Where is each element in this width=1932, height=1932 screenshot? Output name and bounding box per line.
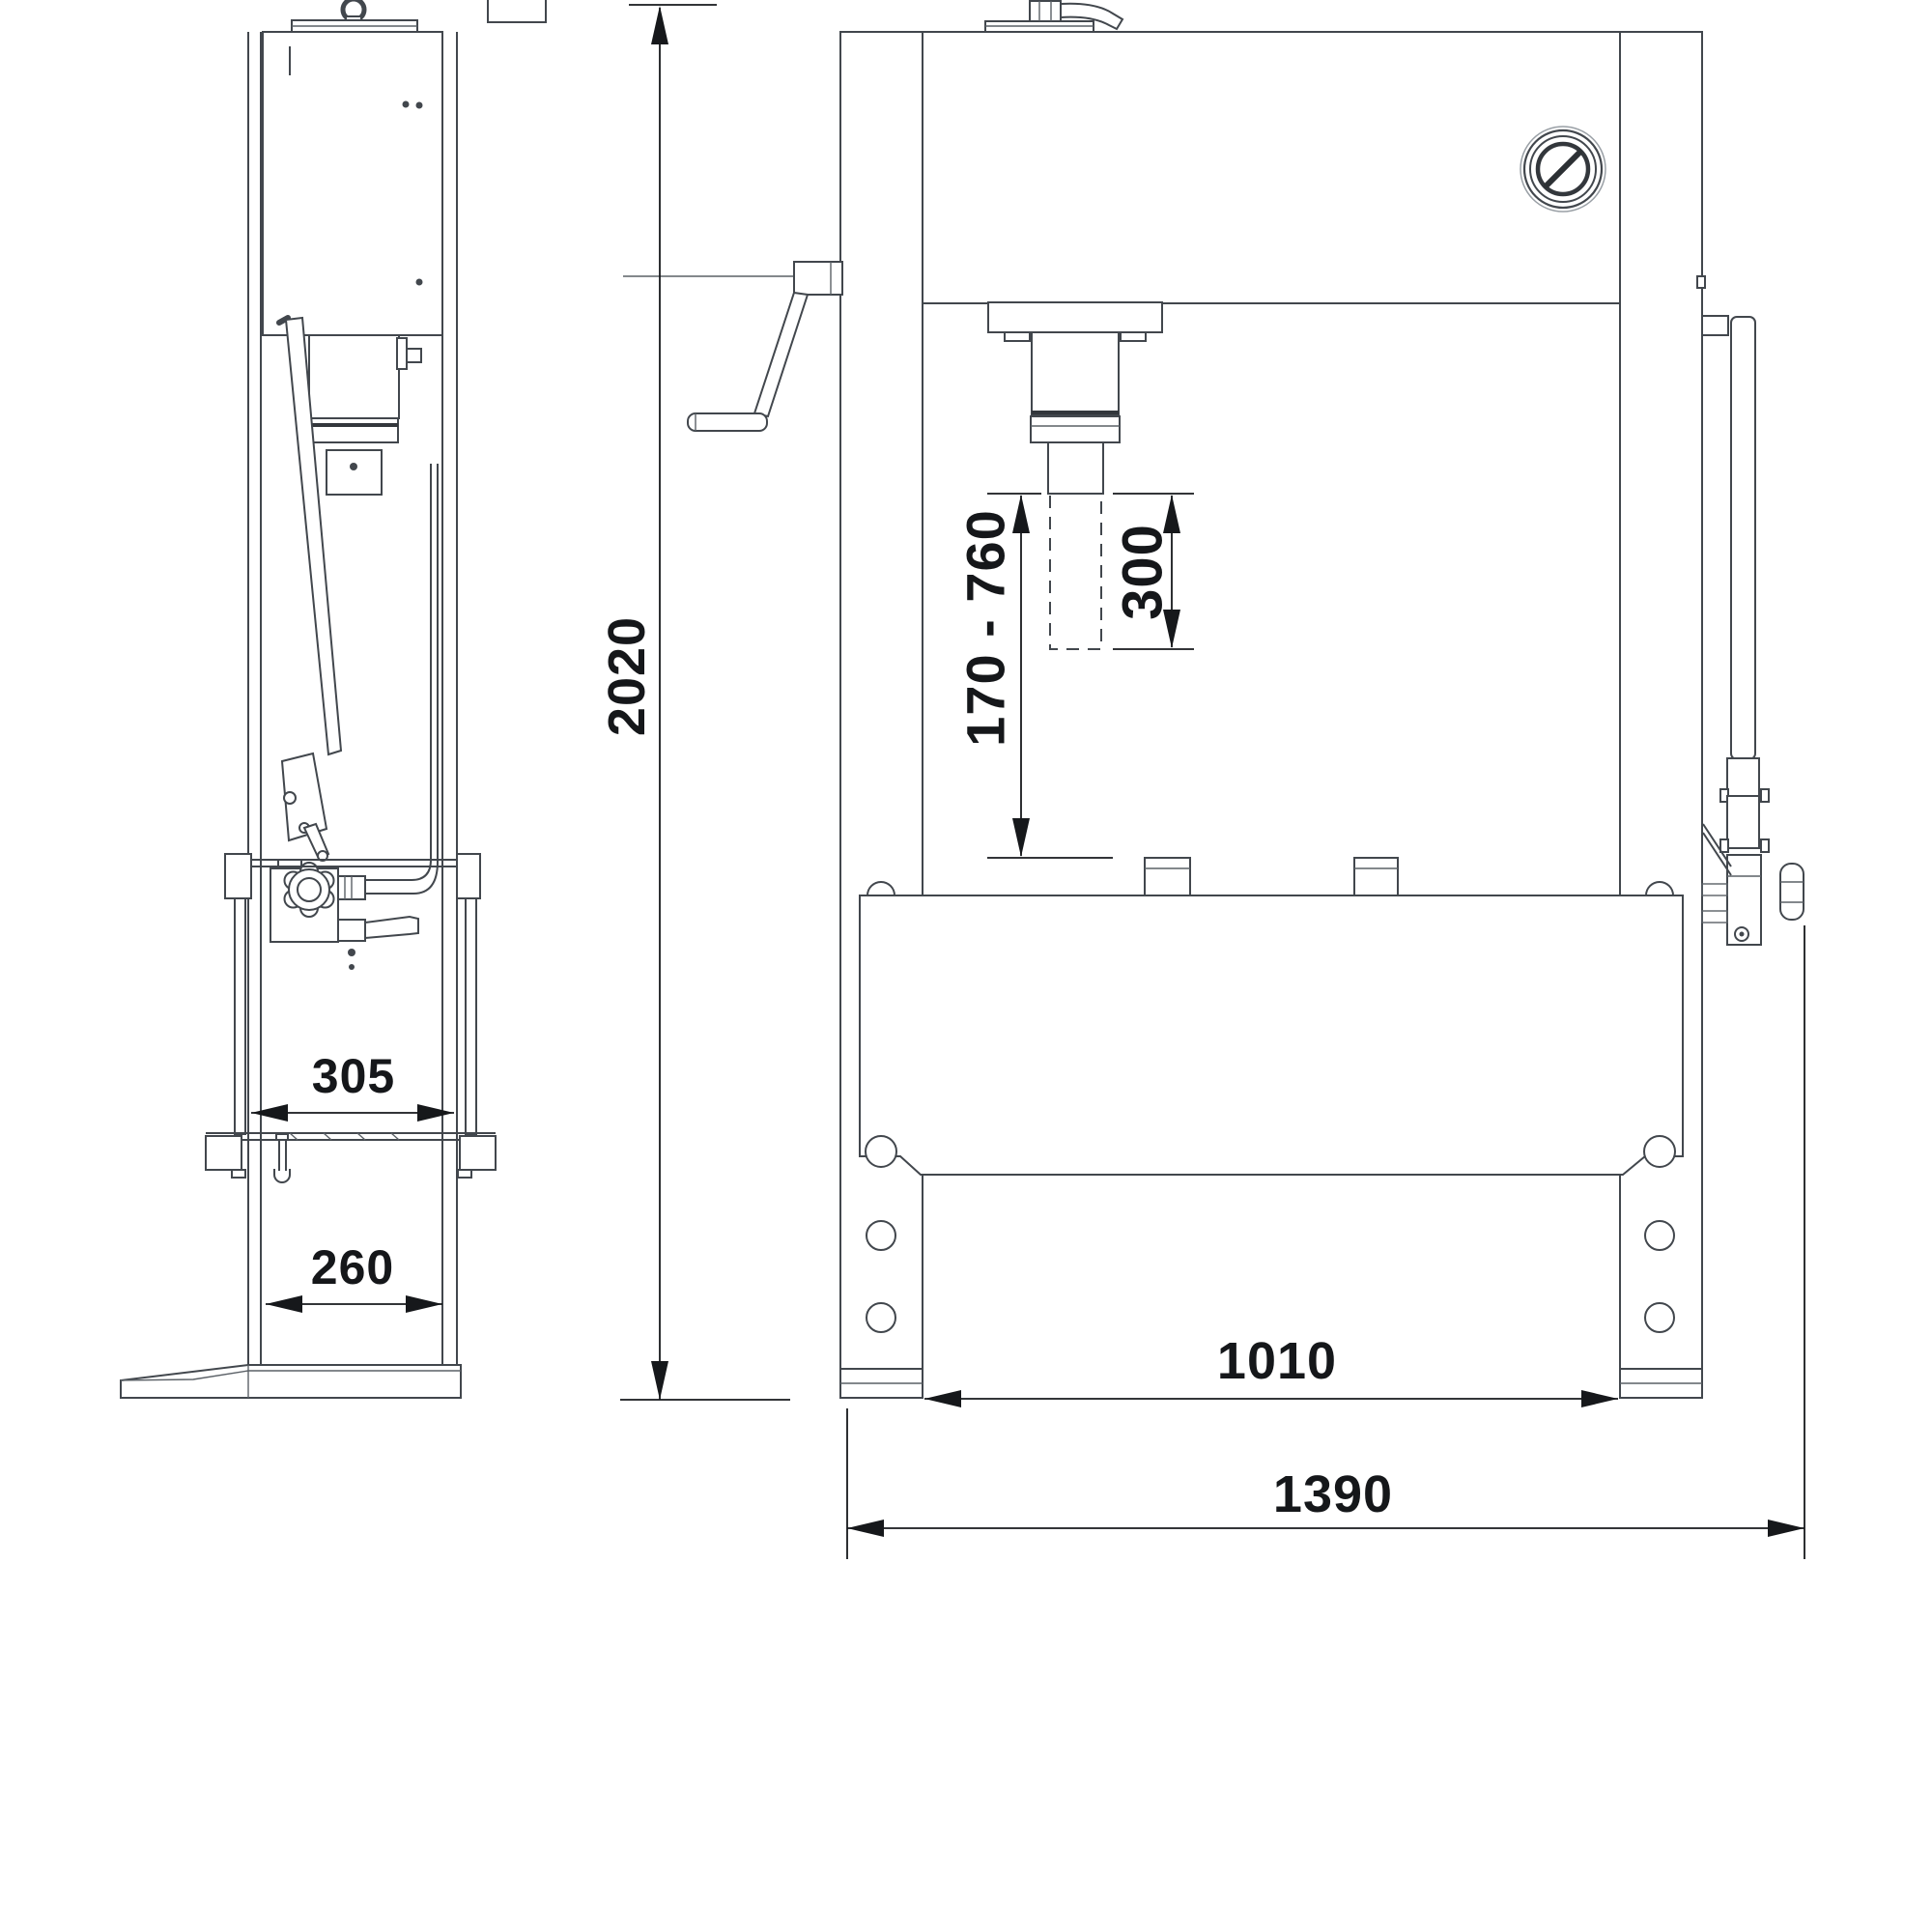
hand-pump-assembly — [1702, 316, 1804, 945]
dim-working-range: 170 - 760 — [955, 494, 1114, 858]
bed-support-pin — [274, 1134, 290, 1182]
front-column-right — [1620, 32, 1702, 1369]
clipped-detail-box — [488, 0, 546, 22]
dim-piston-stroke-label: 300 — [1112, 524, 1175, 620]
bed-support-block-right — [1354, 858, 1398, 896]
front-foot-right — [1620, 1369, 1702, 1398]
front-column-left — [840, 32, 923, 1369]
dim-overall-width-label: 1390 — [1273, 1465, 1393, 1523]
dim-inner-width: 1010 — [924, 1332, 1618, 1407]
top-beam — [923, 32, 1620, 303]
dim-overall-height: 2020 — [488, 0, 794, 1400]
oil-tank — [263, 32, 442, 335]
bed-support-block-left — [1145, 858, 1190, 896]
pump-release-knob — [1780, 864, 1804, 920]
hydraulic-press-drawing: 305 260 2020 — [0, 0, 1932, 1932]
dim-side-width-lower: 260 — [266, 1240, 442, 1313]
front-foot-left — [840, 1369, 923, 1398]
technical-drawing-page: 305 260 2020 — [0, 0, 1932, 1932]
dim-piston-stroke: 300 — [1112, 494, 1195, 649]
column-bolt — [1697, 276, 1705, 288]
lever-linkage — [282, 753, 328, 861]
ram-extended-dashed — [1050, 496, 1101, 649]
pressure-gauge — [1520, 127, 1605, 212]
side-cylinder — [309, 335, 421, 495]
side-foot — [121, 1365, 461, 1398]
front-view: 170 - 760 300 — [688, 1, 1804, 1559]
dim-side-width-lower-label: 260 — [311, 1240, 394, 1294]
press-ram — [1048, 442, 1103, 494]
winch-crank-handle — [688, 262, 842, 431]
side-top-plate — [292, 20, 417, 32]
press-bed — [860, 882, 1683, 1175]
dim-overall-height-label: 2020 — [598, 616, 656, 736]
hydraulic-hose — [338, 464, 438, 941]
side-view: 305 260 — [121, 0, 496, 1398]
dim-working-range-label: 170 - 760 — [955, 509, 1016, 747]
dim-inner-width-label: 1010 — [1217, 1332, 1337, 1390]
oil-filler-cap — [985, 1, 1122, 32]
dim-side-width-upper-label: 305 — [312, 1049, 395, 1103]
dim-side-width-upper: 305 — [251, 1049, 454, 1122]
